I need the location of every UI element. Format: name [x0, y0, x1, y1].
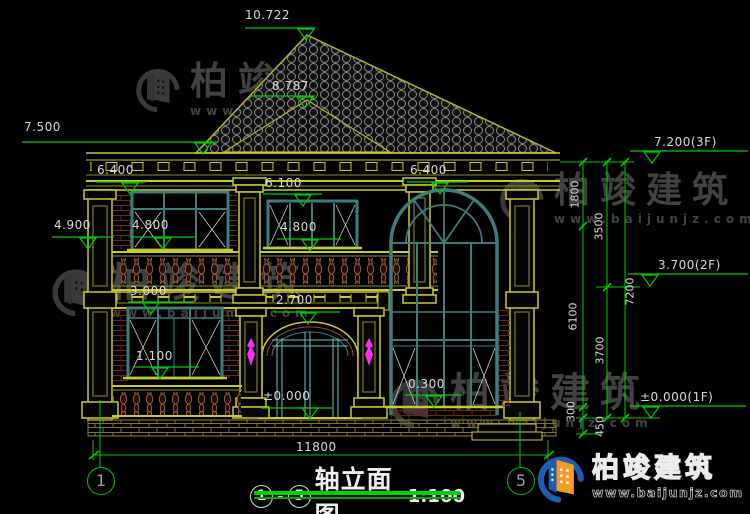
axis-bubble-1: 1 [87, 467, 115, 495]
dim-label-300: 300 [565, 390, 578, 434]
elevation-label-left-window-top: 6.400 [97, 163, 134, 177]
dim-label-7200: 7200 [624, 270, 637, 314]
dim-label-3700: 3700 [594, 329, 607, 373]
plinth [88, 420, 556, 440]
dim-label-1800: 1800 [569, 173, 582, 217]
entrance-door [258, 322, 362, 418]
title-axis-end: 5 [288, 485, 311, 508]
brand-logo-icon [534, 449, 586, 505]
title-underline-thick [254, 491, 460, 495]
entry-steps [478, 424, 536, 432]
elevation-label-center-sill: 4.800 [280, 220, 317, 234]
elevation-label-floor1: ±0.000(1F) [640, 390, 713, 404]
elevation-label-floor3: 7.200(3F) [654, 135, 717, 149]
elevation-label-left-sill: 4.800 [132, 218, 169, 232]
title-name: 轴立面图 [315, 460, 398, 514]
cad-canvas: 柏竣建筑 www.baijunjz.com 柏竣建筑 www.baijunjz.… [0, 0, 750, 514]
dim-label-6100: 6100 [567, 295, 580, 339]
entry-steps [472, 432, 542, 440]
elevation-label-center-window-top: 6.100 [265, 176, 302, 190]
title-underline-thin [254, 497, 460, 499]
dim-label-3500: 3500 [593, 205, 606, 249]
elevation-label-balcony-rail: 4.900 [54, 218, 91, 232]
elevation-label-lower-ridge: 8.787 [272, 79, 309, 93]
eave-cornice [86, 153, 560, 190]
brand-logo-name: 柏竣建筑 [592, 455, 744, 482]
porch-column-left [233, 178, 266, 303]
brand-logo: 柏竣建筑 www.baijunjz.com [534, 449, 744, 505]
elevation-label-eave-left: 7.500 [24, 120, 61, 134]
elevation-drawing [0, 0, 750, 514]
title-scale: 1:100 [408, 486, 465, 507]
elevation-label-sill-1f: 1.100 [136, 349, 173, 363]
elevation-label-ground: ±0.000 [263, 389, 310, 403]
title-axis-start: 1 [250, 485, 273, 508]
elevation-label-arch-sill: 0.300 [408, 377, 445, 391]
axis-bubble-5: 5 [507, 467, 535, 495]
elevation-label-ridge: 10.722 [245, 8, 290, 22]
porch-balustrade-1f [112, 386, 242, 416]
dim-label-450: 450 [594, 405, 607, 449]
elevation-label-door-top: 2.700 [276, 293, 313, 307]
title-dash: - [277, 487, 284, 506]
elevation-label-floor2: 3.700(2F) [658, 258, 721, 272]
dim-label-total-width: 11800 [296, 440, 337, 454]
brand-logo-url: www.baijunjz.com [592, 485, 744, 500]
hip-roof [196, 35, 556, 153]
drawing-title: 1 - 5 轴立面图 1:100 [250, 460, 465, 514]
elevation-label-arch-top: 6.400 [410, 163, 447, 177]
elevation-label-slab: 3.000 [130, 284, 167, 298]
